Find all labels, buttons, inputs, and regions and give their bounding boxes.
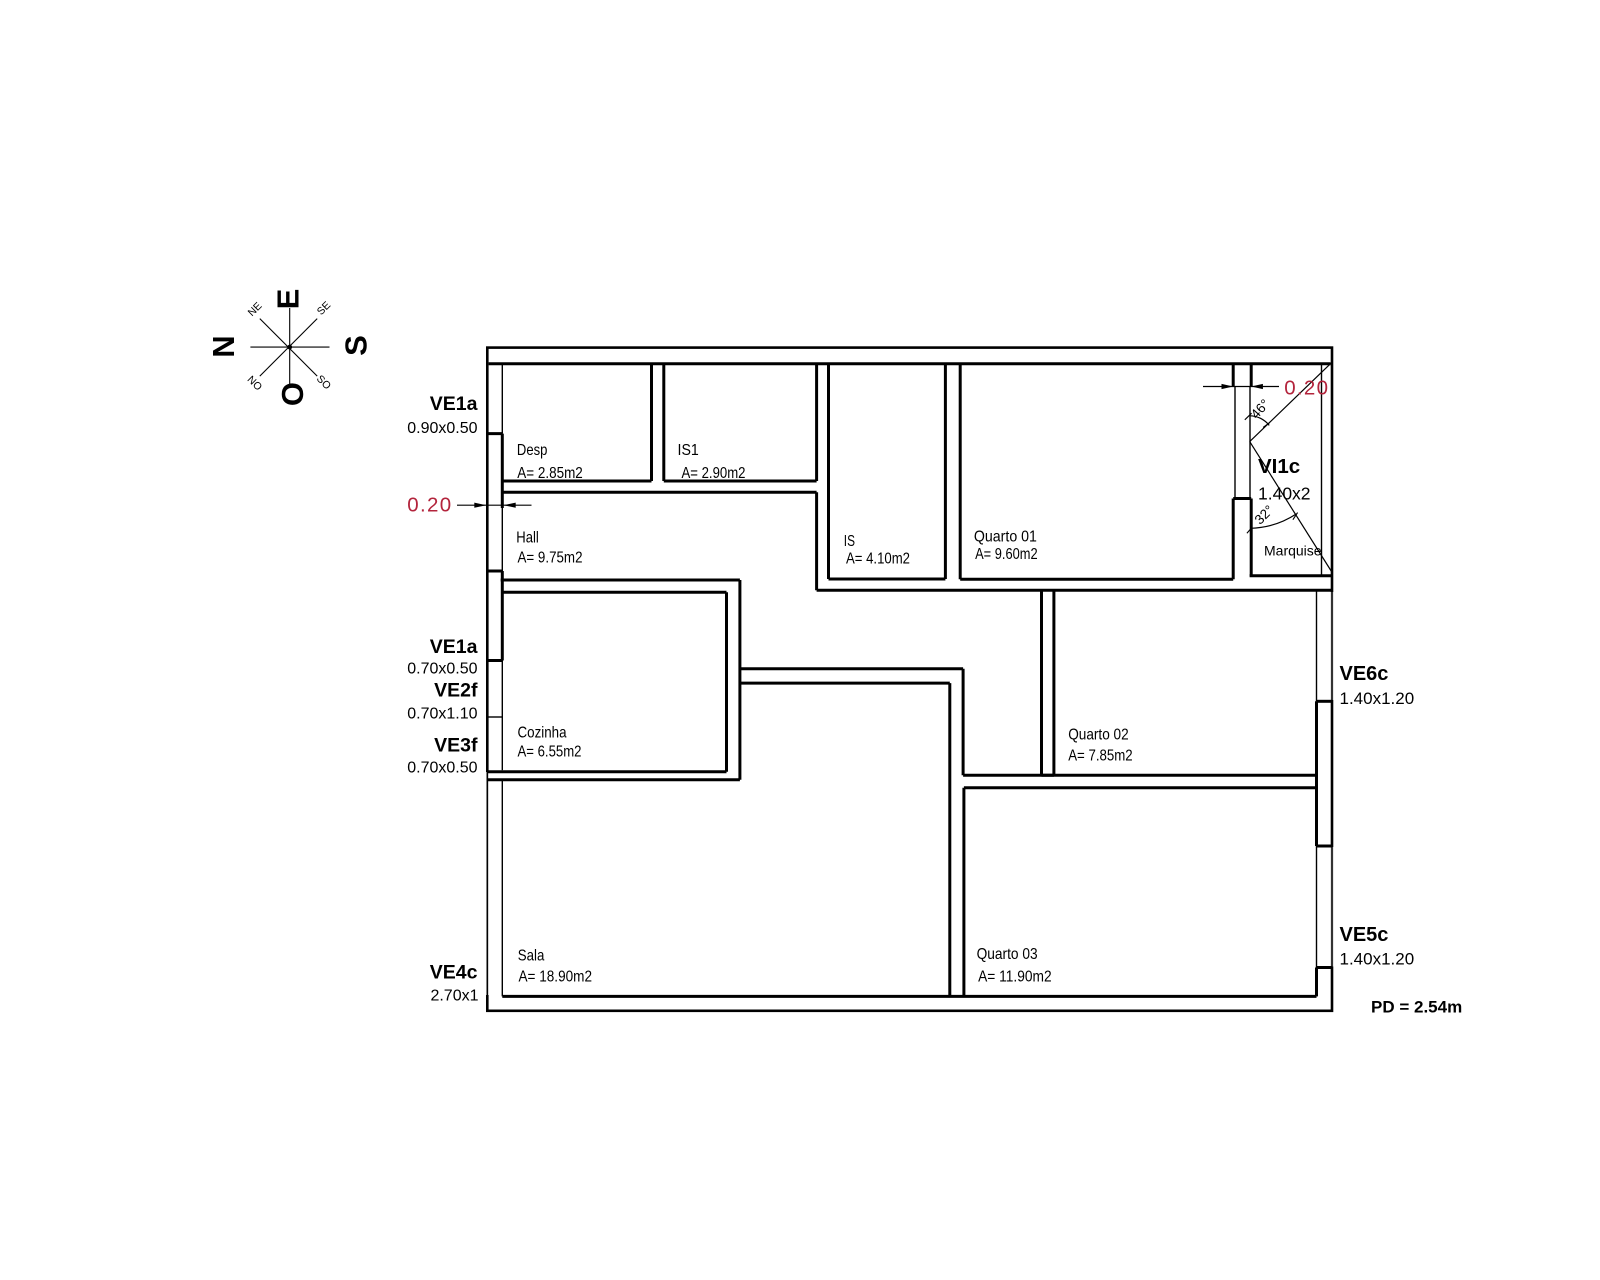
svg-text:Quarto 01: Quarto 01 xyxy=(974,529,1037,546)
svg-text:A= 18.90m2: A= 18.90m2 xyxy=(519,969,593,986)
svg-text:1.40x2: 1.40x2 xyxy=(1258,484,1311,504)
svg-text:A= 4.10m2: A= 4.10m2 xyxy=(846,551,910,568)
svg-text:A= 6.55m2: A= 6.55m2 xyxy=(518,744,582,761)
svg-text:A= 9.60m2: A= 9.60m2 xyxy=(975,546,1038,563)
svg-text:Sala: Sala xyxy=(518,948,545,965)
svg-text:0.20: 0.20 xyxy=(407,494,452,517)
svg-text:Desp: Desp xyxy=(517,442,548,459)
svg-text:IS: IS xyxy=(844,533,855,550)
svg-text:1.40x1.20: 1.40x1.20 xyxy=(1340,689,1415,708)
svg-text:VE5c: VE5c xyxy=(1340,924,1389,946)
svg-text:A= 9.75m2: A= 9.75m2 xyxy=(518,550,583,567)
svg-text:Hall: Hall xyxy=(516,530,539,547)
svg-text:A= 2.85m2: A= 2.85m2 xyxy=(517,465,583,482)
svg-text:VI1c: VI1c xyxy=(1258,455,1300,478)
svg-text:IS1: IS1 xyxy=(678,442,699,459)
svg-text:0.70x0.50: 0.70x0.50 xyxy=(407,760,477,777)
svg-text:0.90x0.50: 0.90x0.50 xyxy=(407,420,477,437)
svg-text:Marquise: Marquise xyxy=(1264,543,1322,559)
svg-text:VE3f: VE3f xyxy=(434,734,478,756)
svg-text:S: S xyxy=(339,335,374,356)
svg-text:E: E xyxy=(271,289,306,310)
svg-text:Quarto 02: Quarto 02 xyxy=(1068,727,1129,744)
svg-text:VE1a: VE1a xyxy=(430,393,478,415)
svg-text:Quarto 03: Quarto 03 xyxy=(977,946,1038,963)
svg-text:A= 11.90m2: A= 11.90m2 xyxy=(978,969,1052,986)
svg-text:A= 2.90m2: A= 2.90m2 xyxy=(682,465,746,482)
svg-text:0.20: 0.20 xyxy=(1284,376,1329,399)
svg-text:VE6c: VE6c xyxy=(1340,663,1389,685)
svg-text:VE4c: VE4c xyxy=(430,962,478,984)
svg-text:0.70x0.50: 0.70x0.50 xyxy=(407,660,477,677)
svg-text:A= 7.85m2: A= 7.85m2 xyxy=(1068,748,1133,765)
svg-text:VE2f: VE2f xyxy=(434,680,478,702)
svg-text:N: N xyxy=(206,335,241,357)
svg-text:1.40x1.20: 1.40x1.20 xyxy=(1340,950,1415,969)
svg-text:VE1a: VE1a xyxy=(430,636,478,658)
svg-text:PD = 2.54m: PD = 2.54m xyxy=(1371,997,1462,1016)
svg-text:0.70x1.10: 0.70x1.10 xyxy=(407,705,477,722)
svg-text:Cozinha: Cozinha xyxy=(518,725,567,742)
svg-text:O: O xyxy=(275,382,310,406)
svg-text:2.70x1: 2.70x1 xyxy=(430,988,478,1005)
